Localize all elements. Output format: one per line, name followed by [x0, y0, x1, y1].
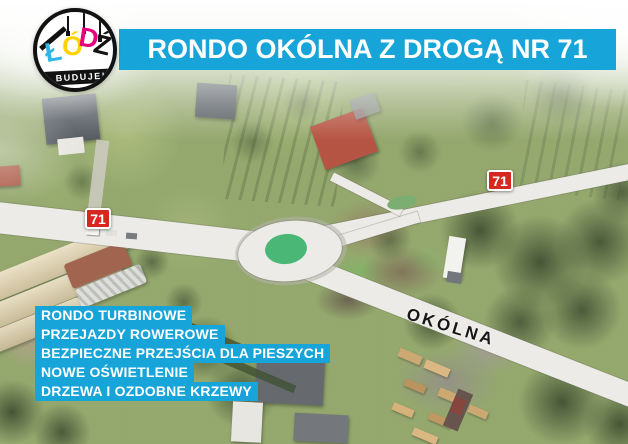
logo-tagline: BUDUJE!: [33, 67, 117, 86]
house-terrace: [57, 137, 85, 156]
lumber-stack: [467, 404, 489, 419]
car: [106, 230, 117, 237]
car: [126, 233, 137, 240]
road-badge-71-east: 71: [487, 170, 513, 191]
feature-item: BEZPIECZNE PRZEJŚCIA DLA PIESZYCH: [35, 344, 330, 363]
crane-cable-icon: [67, 16, 69, 32]
feature-item: RONDO TURBINOWE: [35, 306, 192, 325]
lumber-stack: [391, 402, 414, 418]
lumber-stack: [403, 378, 426, 394]
lumber-stack: [423, 359, 450, 377]
lumber-stack: [411, 427, 438, 444]
title-banner: RONDO OKÓLNA Z DROGĄ NR 71: [119, 29, 616, 70]
road-badge-71-west: 71: [85, 208, 111, 229]
logo-letter: Ł: [43, 38, 64, 67]
feature-item: DRZEWA I OZDOBNE KRZEWY: [35, 382, 258, 401]
small-house: [0, 165, 21, 187]
driveway: [88, 139, 110, 212]
lumber-stack: [397, 348, 423, 366]
lodz-buduje-logo: Ł Ó D Ź BUDUJE!: [33, 8, 117, 92]
garage: [349, 92, 380, 120]
truck-cab: [446, 271, 463, 284]
infographic: RONDO OKÓLNA Z DROGĄ NR 71 Ł Ó D Ź BUDUJ…: [0, 0, 628, 444]
feature-list: RONDO TURBINOWE PRZEJAZDY ROWEROWE BEZPI…: [35, 306, 330, 401]
feature-item: NOWE OŚWIETLENIE: [35, 363, 194, 382]
house: [293, 413, 348, 444]
feature-item: PRZEJAZDY ROWEROWE: [35, 325, 225, 344]
logo-circle: Ł Ó D Ź BUDUJE!: [33, 8, 117, 92]
house: [231, 401, 263, 443]
house: [195, 83, 237, 120]
